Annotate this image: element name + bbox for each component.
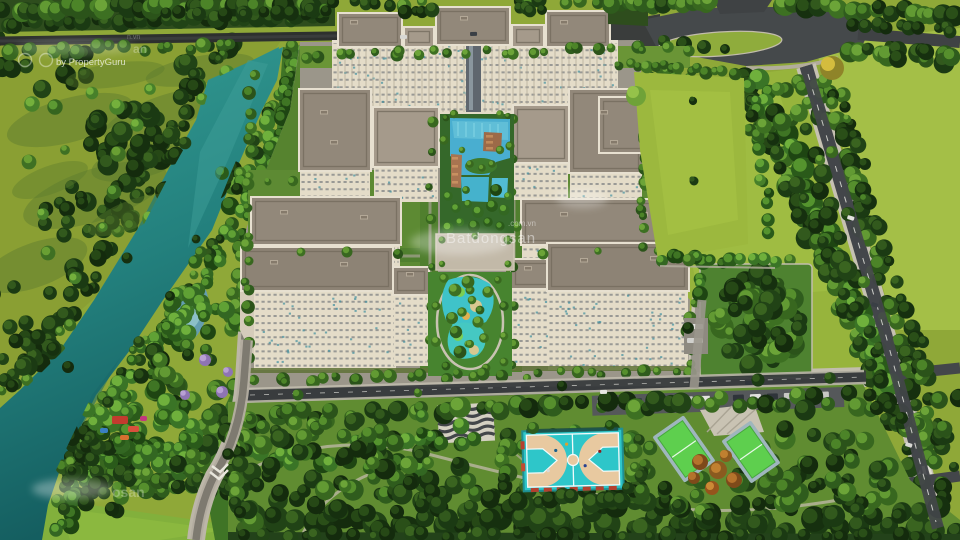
svg-text:an: an <box>133 42 147 56</box>
svg-text:osan: osan <box>112 484 145 500</box>
svg-text:n.vn: n.vn <box>127 34 140 41</box>
svg-text:.com.vn: .com.vn <box>508 219 536 228</box>
svg-text:by PropertyGuru: by PropertyGuru <box>56 57 126 68</box>
